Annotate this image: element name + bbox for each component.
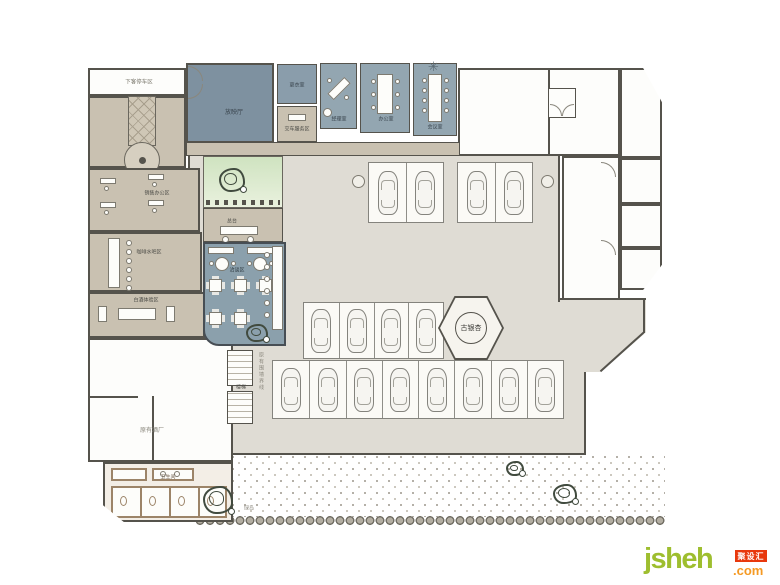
parking-stall: [369, 163, 406, 222]
entry-walkway: [128, 96, 156, 146]
conference-table: [428, 74, 442, 122]
four-seat-table: [209, 312, 222, 325]
wall-segment: [584, 372, 586, 455]
parking-stall: [458, 163, 495, 222]
stair-box: [227, 350, 253, 386]
wall-segment: [90, 396, 138, 398]
parking-stall: [374, 303, 409, 358]
stall-divider: [140, 488, 142, 516]
desk: [148, 174, 164, 180]
parking-stall: [495, 163, 532, 222]
car: [504, 171, 524, 215]
bar-counter: [108, 238, 120, 288]
ginkgo-circle: 古银杏: [455, 312, 487, 344]
bar-stool: [264, 300, 270, 306]
column: [352, 175, 365, 188]
vacant-room-a: [458, 68, 550, 156]
vacant-room-f: [620, 248, 662, 290]
desk: [100, 202, 116, 208]
car: [467, 171, 487, 215]
chair: [104, 186, 109, 191]
toilet: [149, 496, 156, 506]
parking-stall: [406, 163, 443, 222]
round-table: [215, 257, 229, 271]
corridor-right: [562, 156, 620, 300]
bar-stool: [264, 276, 270, 282]
label-green-island: 绿岛: [244, 507, 254, 512]
label-old-winery: 原有酒厂: [140, 428, 164, 434]
chair: [247, 261, 252, 266]
exhibition-hall-extension: [560, 300, 646, 372]
table: [288, 114, 306, 121]
bar-stool: [264, 312, 270, 318]
parking-stall: [309, 361, 345, 418]
car: [381, 309, 401, 353]
bar-stool: [126, 276, 132, 282]
tree-icon: [506, 461, 524, 476]
reception-desk: [220, 226, 258, 235]
label-drop-off: 下客停车区: [125, 80, 153, 86]
label-washroom: 卫生间: [160, 476, 175, 481]
bar-stool: [264, 264, 270, 270]
car: [427, 368, 447, 412]
car: [378, 171, 398, 215]
chair: [444, 98, 449, 103]
toilet: [120, 496, 127, 506]
toilet: [178, 496, 185, 506]
parking-stall: [408, 303, 443, 358]
label-coffee-bar: 咖啡水吧区: [136, 251, 161, 256]
entry-circle-dot: [139, 157, 146, 164]
label-manager-room: 经理室: [331, 118, 346, 123]
parking-stall: [304, 303, 339, 358]
tree-icon: [553, 484, 577, 504]
stall-divider: [169, 488, 171, 516]
reception-zone: [203, 208, 283, 242]
car: [416, 309, 436, 353]
bar-stool: [264, 288, 270, 294]
parking-pad: [272, 360, 564, 419]
car: [311, 309, 331, 353]
chair: [371, 79, 376, 84]
chair: [422, 108, 427, 113]
vacant-room-d: [620, 158, 662, 204]
corridor-top: [186, 142, 460, 156]
chair: [371, 105, 376, 110]
chair: [395, 79, 400, 84]
bar-stool: [264, 252, 270, 258]
chair: [444, 78, 449, 83]
label-office: 办公室: [378, 118, 393, 123]
wall-segment: [558, 150, 560, 302]
bar-stool: [126, 240, 132, 246]
vacant-room-e: [620, 204, 662, 248]
chair: [395, 92, 400, 97]
column: [541, 175, 554, 188]
bar-stool: [126, 249, 132, 255]
wall-segment: [643, 300, 645, 333]
chair: [104, 210, 109, 215]
label-locker-room: 更衣室: [289, 84, 304, 89]
label-ginkgo: 古银杏: [461, 323, 482, 333]
chair: [395, 105, 400, 110]
car: [463, 368, 483, 412]
chair: [327, 78, 332, 83]
coffee-bar-room: [88, 232, 202, 292]
car: [535, 368, 555, 412]
tree-icon: [219, 168, 245, 192]
bar-stool: [126, 267, 132, 273]
car: [318, 368, 338, 412]
watermark-badge: 聚设汇: [735, 550, 767, 562]
label-liquor-area: 白酒体验区: [133, 299, 158, 304]
paved-plaza: [195, 455, 665, 517]
car: [390, 368, 410, 412]
display-stand: [166, 306, 175, 322]
ceiling-fan-icon: ✳: [428, 60, 439, 73]
label-delivery-room: 交车服务区: [284, 128, 309, 133]
watermark[interactable]: jsheh 聚设汇 .com: [634, 543, 778, 583]
parking-pad: [457, 162, 533, 223]
chair: [444, 88, 449, 93]
counter-bar: [272, 246, 283, 330]
parking-stall: [273, 361, 309, 418]
display-table: [118, 308, 156, 320]
tree-icon: [246, 324, 268, 342]
hedge-row: [195, 515, 665, 526]
delivery-room: [277, 106, 317, 142]
chair: [231, 261, 236, 266]
parking-stall: [527, 361, 563, 418]
desk: [148, 200, 164, 206]
parking-stall: [454, 361, 490, 418]
car: [354, 368, 374, 412]
car: [499, 368, 519, 412]
chair: [344, 95, 349, 100]
label-meeting-room: 会议室: [427, 126, 442, 131]
stair-box: [227, 391, 253, 424]
bar-stool: [126, 285, 132, 291]
floor-plan-canvas: 绿岛 下客停车区 销售办公区 咖啡水吧区 白酒体验区 原有酒厂: [0, 0, 780, 585]
chair: [444, 108, 449, 113]
chair: [422, 78, 427, 83]
car: [347, 309, 367, 353]
parking-stall: [346, 361, 382, 418]
parking-stall: [418, 361, 454, 418]
vacant-room-c: [620, 68, 662, 158]
label-stairs: 楼梯: [236, 386, 246, 391]
label-boundary-note: 原有围墙界线: [258, 352, 265, 424]
chair: [152, 182, 157, 187]
label-reception-desk: 总台: [227, 220, 237, 225]
washroom-lobby: [111, 468, 147, 481]
label-lounge: 洽谈区: [229, 269, 244, 274]
label-sales-office: 销售办公区: [144, 192, 169, 197]
stall-divider: [198, 488, 200, 516]
tree-icon: [203, 486, 233, 514]
old-winery-room: [88, 338, 233, 462]
four-seat-table: [234, 279, 247, 292]
bar-stool: [126, 258, 132, 264]
parking-stall: [491, 361, 527, 418]
label-screening-room: 放映厅: [225, 110, 243, 116]
four-seat-table: [234, 312, 247, 325]
window-sill: [206, 200, 280, 205]
chair: [371, 92, 376, 97]
watermark-tld: .com: [733, 563, 763, 578]
car: [415, 171, 435, 215]
chair: [209, 261, 214, 266]
display-stand: [98, 306, 107, 322]
conference-table: [377, 74, 393, 114]
car: [281, 368, 301, 412]
parking-stall: [382, 361, 418, 418]
four-seat-table: [209, 279, 222, 292]
chair: [422, 88, 427, 93]
desk: [100, 178, 116, 184]
sofa-bench: [208, 247, 234, 254]
chair: [152, 208, 157, 213]
parking-pad: [303, 302, 444, 359]
parking-stall: [339, 303, 374, 358]
parking-pad: [368, 162, 444, 223]
watermark-brand[interactable]: jsheh: [644, 543, 712, 576]
chair: [422, 98, 427, 103]
